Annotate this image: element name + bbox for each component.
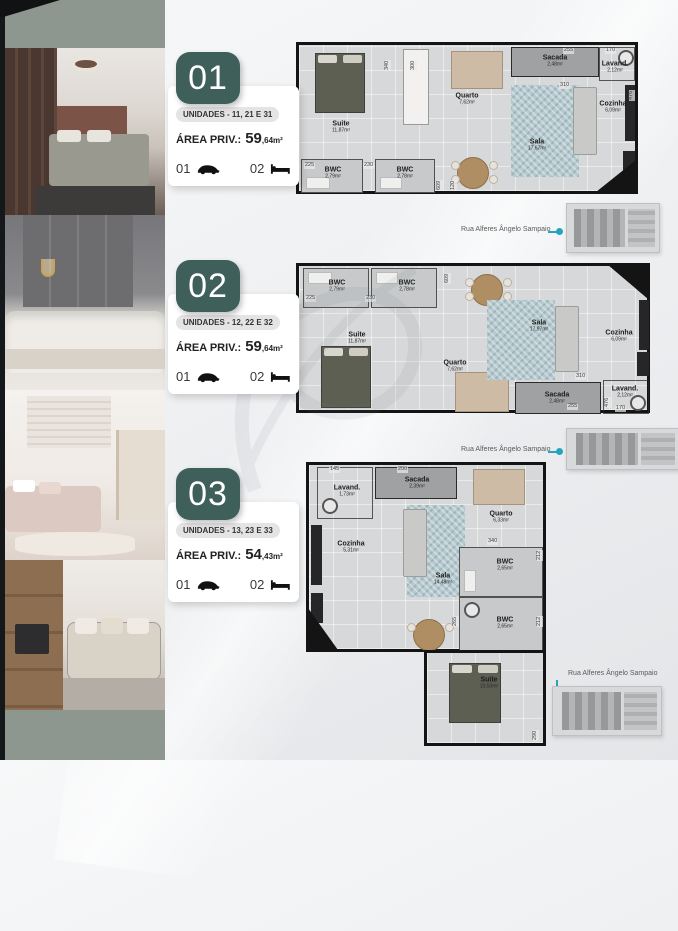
unidades-pill: UNIDADES - 12, 22 E 32 (176, 315, 280, 330)
connector-dot (556, 228, 563, 235)
area-label: ÁREA PRIV.: (176, 342, 241, 354)
dim-label: 609 (437, 180, 443, 191)
room-sala (507, 79, 599, 193)
room-area: 2,39m² (405, 484, 430, 490)
quarto-bed (451, 51, 503, 89)
dim-label: 255 (563, 48, 574, 54)
street-label: Rua Alferes Ângelo Sampaio (461, 226, 551, 233)
dim-label: 476 (629, 90, 635, 101)
room-cozinha (311, 521, 397, 631)
dim-label: 340 (385, 60, 391, 71)
car-icon (196, 579, 220, 591)
room-area: 2,65m² (497, 566, 514, 572)
room-suite (301, 310, 409, 414)
street-label: Rua Alferes Ângelo Sampaio (461, 446, 551, 453)
suite-bed (321, 346, 371, 408)
area-label: ÁREA PRIV.: (176, 550, 241, 562)
dim-label: 230 (363, 163, 374, 169)
unidades-pill: UNIDADES - 11, 21 E 31 (176, 107, 279, 122)
unidades-pill: UNIDADES - 13, 23 E 33 (176, 523, 280, 538)
bed-icon (270, 579, 291, 591)
bed-count: 02 (250, 577, 264, 592)
dim-label: 200 (397, 467, 408, 473)
floor-plan-3: Lavand.1,73m² Sacada2,39m² Quarto6,33m² … (306, 462, 546, 746)
unit-number: 01 (188, 59, 228, 98)
unit-number: 03 (188, 475, 228, 514)
room-area: 2,48m² (545, 399, 570, 405)
dim-label: 170 (605, 48, 616, 54)
washer (464, 602, 480, 618)
room-quarto (427, 47, 507, 133)
garage-count: 01 (176, 161, 190, 176)
room-area: 2,12m² (612, 393, 638, 399)
car-icon (196, 371, 220, 383)
area-value: 59 (245, 338, 262, 355)
dim-label: 120 (451, 180, 457, 191)
dining-table (413, 619, 445, 651)
dim-label: 145 (329, 467, 340, 473)
dim-label: 212 (537, 550, 543, 561)
bed-count: 02 (250, 369, 264, 384)
room-area: 2,12m² (602, 68, 628, 74)
bed-icon (270, 163, 291, 175)
floor-plan-1: Suite11,87m² Quarto7,62m² Sacada2,48m² L… (296, 42, 638, 194)
photo-strip (5, 0, 165, 760)
bed-count: 02 (250, 161, 264, 176)
room-area: 1,73m² (334, 492, 360, 498)
room-bwc-1 (459, 547, 543, 597)
site-minimap-3 (552, 686, 662, 736)
car-icon (196, 163, 220, 175)
unit-badge-02: 02 (176, 260, 240, 312)
room-area: 17,67m² (528, 146, 546, 152)
wall-sconce (41, 259, 55, 277)
angled-wall (608, 265, 648, 299)
room-area: 7,62m² (456, 100, 479, 106)
suite-bed (315, 53, 365, 113)
dim-label: 290 (533, 730, 539, 741)
photo-bedroom-suite (5, 48, 165, 215)
room-area: 17,97m² (530, 327, 548, 333)
room-area: 11,87m² (332, 128, 350, 134)
room-sala (481, 294, 589, 384)
sala-sofa (403, 509, 427, 577)
dim-label: 212 (537, 616, 543, 627)
unit-badge-03: 03 (176, 468, 240, 520)
room-area: 2,48m² (543, 62, 568, 68)
dining-table (457, 157, 489, 189)
sala-sofa (555, 306, 579, 372)
room-area: 11,87m² (348, 339, 366, 345)
room-area: 2,79m² (325, 174, 342, 180)
room-area: 2,78m² (397, 174, 414, 180)
washer (322, 498, 338, 514)
dim-label: 225 (304, 163, 315, 169)
area-unit: ,64m² (262, 344, 283, 353)
site-minimap-1 (566, 203, 660, 253)
dim-label: 310 (559, 83, 570, 89)
room-area: 2,65m² (497, 624, 514, 630)
area-unit: ,64m² (262, 136, 283, 145)
connector-dot (556, 448, 563, 455)
sala-sofa (573, 87, 597, 155)
oven (15, 624, 49, 654)
photo-kids-room (5, 390, 165, 560)
area-value: 59 (245, 130, 262, 147)
ceiling-lamp (75, 60, 97, 68)
street-label: Rua Alferes Ângelo Sampaio (568, 670, 658, 677)
sala-rug (511, 85, 579, 177)
room-area: 10,50m² (480, 684, 498, 690)
room-area: 6,33m² (490, 518, 513, 524)
suite-bed (449, 663, 501, 723)
dim-label: 300 (411, 60, 417, 71)
room-area: 14,48m² (434, 580, 452, 586)
dim-label: 225 (305, 296, 316, 302)
area-label: ÁREA PRIV.: (176, 134, 241, 146)
bed-icon (270, 371, 291, 383)
site-minimap-2 (566, 428, 678, 470)
photo-kitchen-living (5, 560, 165, 710)
room-area: 2,78m² (399, 287, 416, 293)
room-area: 6,09m² (605, 337, 632, 343)
dim-label: 340 (487, 539, 498, 545)
dim-label: 609 (445, 273, 451, 284)
sala-rug (487, 300, 555, 380)
left-black-edge (0, 0, 5, 760)
dim-label: 255 (567, 404, 578, 410)
dim-label: 170 (615, 406, 626, 412)
room-area: 5,31m² (337, 548, 364, 554)
room-area: 7,62m² (444, 367, 467, 373)
unit-number: 02 (188, 267, 228, 306)
room-area: 2,79m² (329, 287, 346, 293)
unit-badge-01: 01 (176, 52, 240, 104)
area-unit: ,43m² (262, 552, 283, 561)
garage-count: 01 (176, 369, 190, 384)
room-area: 6,09m² (599, 108, 626, 114)
quarto-bed (473, 469, 525, 505)
dim-label: 476 (605, 397, 611, 408)
dim-label: 265 (453, 616, 459, 627)
garage-count: 01 (176, 577, 190, 592)
dim-label: 310 (575, 374, 586, 380)
photo-bedroom-2 (5, 215, 165, 390)
floor-plan-2: BWC2,79m² BWC2,78m² Suite11,87m² Quarto7… (296, 263, 650, 413)
area-value: 54 (245, 546, 262, 563)
suite-wing: Suite10,50m² 290 (424, 650, 546, 746)
dim-label: 230 (365, 296, 376, 302)
